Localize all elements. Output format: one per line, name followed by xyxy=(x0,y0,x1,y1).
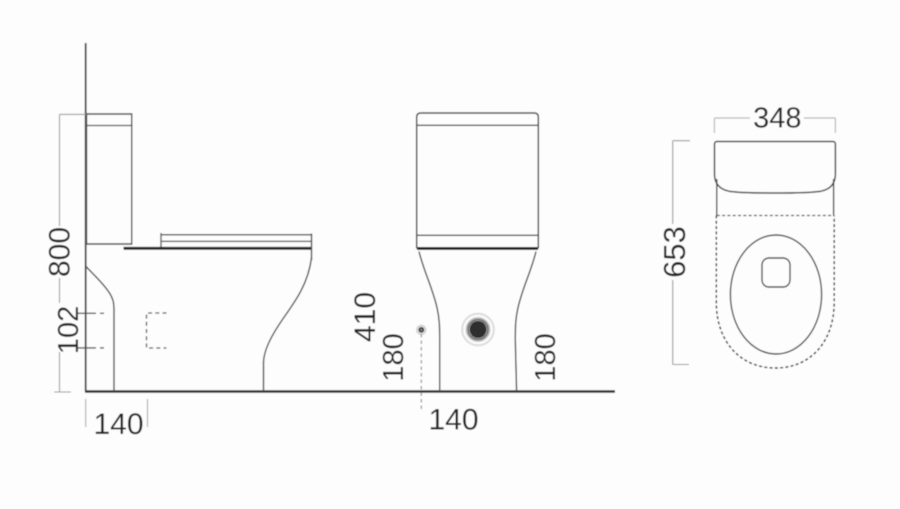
svg-text:653: 653 xyxy=(657,226,692,278)
svg-text:180: 180 xyxy=(378,333,410,381)
svg-text:800: 800 xyxy=(44,227,77,277)
svg-text:180: 180 xyxy=(530,333,562,381)
svg-text:140: 140 xyxy=(428,404,478,437)
svg-text:348: 348 xyxy=(753,103,801,135)
svg-text:102: 102 xyxy=(53,306,85,354)
svg-text:140: 140 xyxy=(93,408,143,441)
